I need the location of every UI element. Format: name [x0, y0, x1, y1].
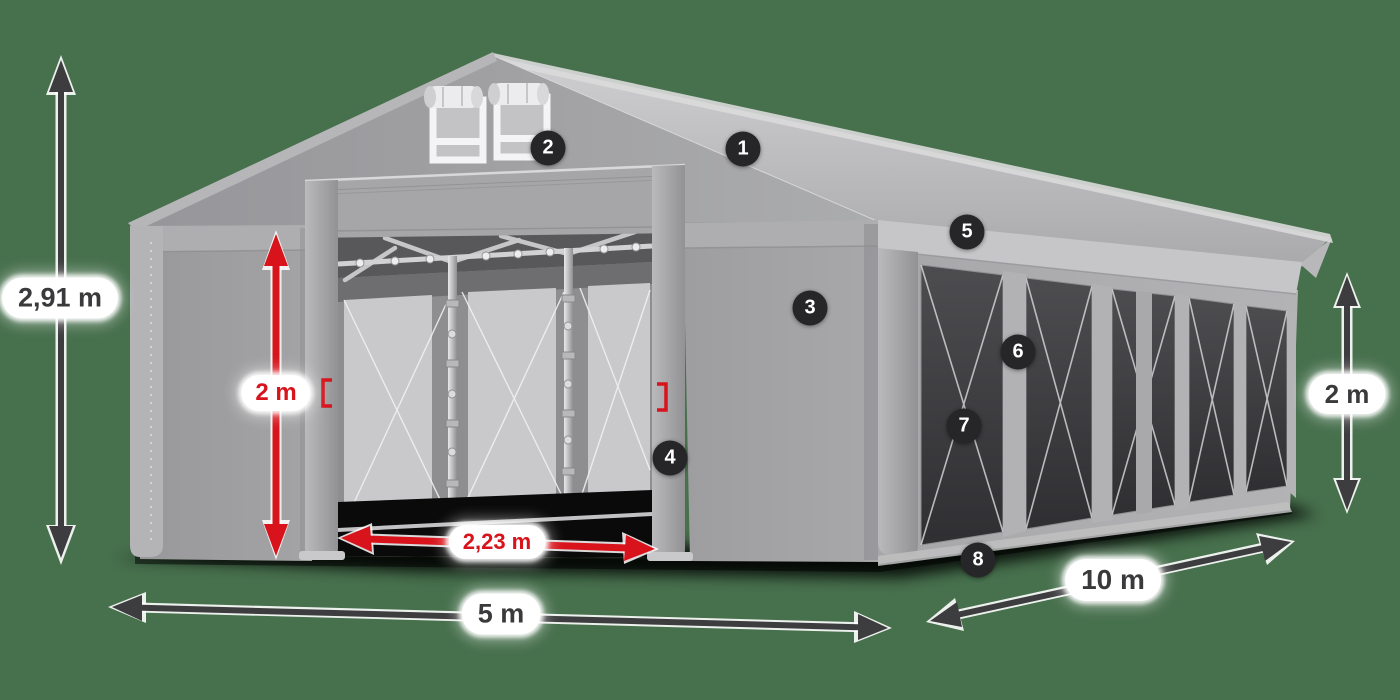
label-side-height: 2 m [1309, 374, 1386, 414]
label-total-height: 2,91 m [2, 278, 118, 319]
label-front-width: 5 m [462, 594, 541, 635]
callout-7[interactable]: 7 [947, 409, 982, 444]
tent-side-wall [878, 220, 1302, 566]
front-wall-right [683, 220, 878, 562]
callout-8[interactable]: 8 [961, 543, 996, 578]
label-door-height: 2 m [241, 375, 310, 411]
callout-2[interactable]: 2 [531, 131, 566, 166]
product-diagram: 2,91 m 2 m 2,23 m 5 m 10 m 2 m 1 2 3 4 5… [0, 0, 1400, 700]
callout-3[interactable]: 3 [793, 291, 828, 326]
label-side-length: 10 m [1065, 559, 1161, 601]
label-door-width: 2,23 m [449, 525, 546, 559]
callout-6[interactable]: 6 [1001, 335, 1036, 370]
callout-5[interactable]: 5 [950, 215, 985, 250]
gable-vent-left [424, 86, 483, 160]
callout-4[interactable]: 4 [653, 441, 688, 476]
door-interior [338, 228, 652, 558]
tent-illustration [0, 0, 1400, 700]
callout-1[interactable]: 1 [726, 132, 761, 167]
